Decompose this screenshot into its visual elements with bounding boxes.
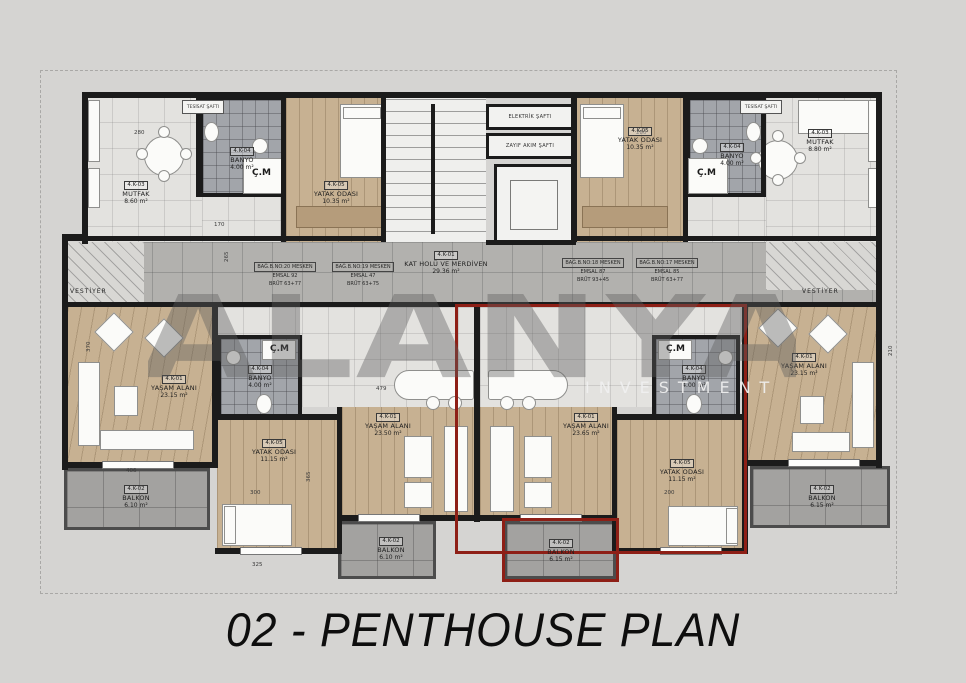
dimension: 325 [252,562,263,568]
elevator-car [510,180,558,230]
room-name: BALKON [360,546,422,555]
wall [212,302,218,468]
tesisat-safti-left: TESİSAT ŞAFTI [182,100,224,114]
room-label-yatak-unit2: 4.K-05 YATAK ODASI 11.15 m² [238,438,310,464]
tesisat-safti-right: TESİSAT ŞAFTI [740,100,782,114]
room-area: 4.00 m² [664,382,724,390]
room-label-yasam-unit2: 4.K-01 YAŞAM ALANI 23.50 m² [352,412,424,438]
vestiyer-right-label: VESTİYER [802,288,839,295]
window [240,547,302,555]
room-code: 4.K-02 [124,485,147,494]
wall [337,407,342,554]
parcel-no: BAĞ.B.NO:18 MESKEN [562,258,623,268]
window [102,461,174,469]
room-label-balkon-unit2: 4.K-02 BALKON 6.10 m² [360,536,422,562]
chair [180,148,192,160]
room-mutfak-topleft [86,96,202,242]
hall-topleft [202,194,286,242]
room-area: 6.10 m² [360,554,422,562]
wall [62,236,386,241]
wall [876,92,882,468]
parcel-emsal: EMSAL 85 [655,269,680,275]
room-label-balkon-unit3: 4.K-02 BALKON 6.15 m² [530,538,592,564]
chair [772,130,784,142]
room-name: MUTFAK [104,190,168,199]
room-area: 6.15 m² [790,502,854,510]
parcel-annotation: BAĞ.B.NO:20 MESKEN EMSAL 92 BRÜT 63+77 [248,262,322,288]
room-area: 6.10 m² [104,502,168,510]
wall [576,236,882,241]
dresser [296,206,382,228]
pillow [583,107,621,119]
cm-label-unit2: Ç.M [270,344,289,354]
room-area: 11.15 m² [646,476,718,484]
room-code: 4.K-05 [262,439,285,448]
room-name: KAT HOLÜ VE MERDİVEN [386,260,506,269]
parcel-emsal: EMSAL 87 [581,269,606,275]
chair [158,126,170,138]
room-area: 23.15 m² [770,370,838,378]
wall [683,92,688,242]
coffee-table [114,386,138,416]
room-name: BANYO [664,374,724,383]
room-code: 4.K-04 [248,365,271,374]
window [788,459,860,467]
room-name: YATAK ODASI [294,190,378,199]
room-name: BALKON [104,494,168,503]
dimension: 365 [306,472,312,483]
shaft-elektrik-label: ELEKTRİK ŞAFTI [508,114,551,120]
parcel-brut: BRÜT 63+77 [269,281,301,287]
room-area: 8.60 m² [104,198,168,206]
room-label-banyo-unit3: 4.K-04 BANYO 4.00 m² [664,364,724,390]
room-name: BANYO [230,374,290,383]
dimension: 370 [86,342,92,353]
room-area: 8.80 m² [788,146,852,154]
room-area: 10.35 m² [294,198,378,206]
room-name: YAŞAM ALANI [352,422,424,431]
room-code: 4.K-01 [162,375,185,384]
room-label-yasam-unit3: 4.K-01 YAŞAM ALANI 23.65 m² [550,412,622,438]
room-label-kat-holu: 4.K-01 KAT HOLÜ VE MERDİVEN 29.36 m² [386,250,506,276]
room-area: 11.15 m² [238,456,310,464]
parcel-no: BAĞ.B.NO:19 MESKEN [332,262,393,272]
room-label-yatak-unit3: 4.K-05 YATAK ODASI 11.15 m² [646,458,718,484]
room-code: 4.K-03 [808,129,831,138]
room-name: YAŞAM ALANI [550,422,622,431]
hall-topright [686,194,766,242]
shaft-zayif-akim: ZAYIF AKIM ŞAFTI [486,133,574,159]
pillow [343,107,381,119]
room-code: 4.K-03 [124,181,147,190]
parcel-emsal: EMSAL 47 [351,273,376,279]
sofa [792,432,850,452]
room-label-banyo-tr: 4.K-04 BANYO 4.00 m² [700,142,764,168]
room-name: YATAK ODASI [598,136,682,145]
vestiyer-right-area [766,242,882,290]
parcel-no: BAĞ.B.NO:17 MESKEN [636,258,697,268]
room-label-yatak-tr: 4.K-05 YATAK ODASI 10.35 m² [598,126,682,152]
stair-hall [386,96,486,244]
room-label-mutfak-tr: 4.K-03 MUTFAK 8.80 m² [788,128,852,154]
parcel-annotation: BAĞ.B.NO:17 MESKEN EMSAL 85 BRÜT 63+77 [630,258,704,284]
coffee-table [800,396,824,424]
room-name: BANYO [202,156,282,165]
room-code: 4.K-05 [628,127,651,136]
room-name: YAŞAM ALANI [770,362,838,371]
wall [571,92,577,242]
parcel-emsal: EMSAL 92 [273,273,298,279]
toilet [746,122,761,142]
tesisat-safti-right-label: TESİSAT ŞAFTI [745,105,777,110]
room-area: 6.15 m² [530,556,592,564]
dimension: 406 [126,468,137,474]
room-code: 4.K-04 [720,143,743,152]
room-code: 4.K-02 [810,485,833,494]
dimension: 200 [664,490,675,496]
wall [62,234,68,470]
room-code: 4.K-01 [574,413,597,422]
sofa [100,430,194,450]
room-name: BALKON [530,548,592,557]
room-area: 23.50 m² [352,430,424,438]
room-code: 4.K-01 [792,353,815,362]
stair-rail [431,104,435,234]
shaft-zayif-akim-label: ZAYIF AKIM ŞAFTI [506,143,554,149]
parcel-brut: BRÜT 93+45 [577,277,609,283]
room-label-yasam-br: 4.K-01 YAŞAM ALANI 23.15 m² [770,352,838,378]
room-name: BALKON [790,494,854,503]
plan-title: 02 - PENTHOUSE PLAN [24,602,942,657]
wall [217,414,342,420]
room-name: BANYO [700,152,764,161]
sink [426,396,440,410]
sofa [404,436,432,478]
pillow [224,506,236,544]
parcel-annotation: BAĞ.B.NO:19 MESKEN EMSAL 47 BRÜT 63+75 [326,262,400,288]
sink [226,350,241,365]
cm-label-unit3: Ç.M [666,344,685,354]
dresser [582,206,668,228]
parcel-no: BAĞ.B.NO:20 MESKEN [254,262,315,272]
parcel-brut: BRÜT 63+77 [651,277,683,283]
room-name: YATAK ODASI [646,468,718,477]
dimension: 300 [250,490,261,496]
room-code: 4.K-04 [230,147,253,156]
room-label-balkon-bl: 4.K-02 BALKON 6.10 m² [104,484,168,510]
room-name: MUTFAK [788,138,852,147]
vestiyer-left-label: VESTİYER [70,288,107,295]
room-name: YATAK ODASI [238,448,310,457]
room-area: 4.00 m² [230,382,290,390]
dimension: 280 [134,130,145,136]
toilet [256,394,272,414]
dimension: 170 [214,222,225,228]
chair [772,174,784,186]
room-area: 23.15 m² [140,392,208,400]
armchair [404,482,432,508]
dimension: 210 [888,346,894,357]
dimension: 265 [224,252,230,263]
room-label-yasam-bl: 4.K-01 YAŞAM ALANI 23.15 m² [140,374,208,400]
room-area: 23.65 m² [550,430,622,438]
cm-label-tr: Ç.M [697,168,716,178]
floor-plan-page: ELEKTRİK ŞAFTI ZAYIF AKIM ŞAFTI [0,0,966,683]
parcel-brut: BRÜT 63+75 [347,281,379,287]
hall-unit2-upper [217,307,302,335]
toilet [204,122,219,142]
room-label-mutfak-tl: 4.K-03 MUTFAK 8.60 m² [104,180,168,206]
kitchen-counter [88,168,100,208]
wall [82,92,88,244]
room-area: 10.35 m² [598,144,682,152]
parcel-annotation: BAĞ.B.NO:18 MESKEN EMSAL 87 BRÜT 93+45 [556,258,630,284]
wall [381,92,386,242]
room-code: 4.K-01 [434,251,457,260]
window [358,514,420,522]
room-name: YAŞAM ALANI [140,384,208,393]
sofa [78,362,100,446]
room-area: 29.36 m² [386,268,506,276]
room-label-yatak-tl: 4.K-05 YATAK ODASI 10.35 m² [294,180,378,206]
room-code: 4.K-02 [549,539,572,548]
kitchen-counter [88,100,100,162]
shaft-elektrik: ELEKTRİK ŞAFTI [486,104,574,130]
cm-label-tl: Ç.M [252,168,271,178]
room-label-balkon-br: 4.K-02 BALKON 6.15 m² [790,484,854,510]
room-code: 4.K-05 [670,459,693,468]
chair [136,148,148,160]
room-label-banyo-unit2: 4.K-04 BANYO 4.00 m² [230,364,290,390]
wall [486,240,576,245]
room-code: 4.K-04 [682,365,705,374]
dimension: 479 [376,386,387,392]
tesisat-safti-left-label: TESİSAT ŞAFTI [187,105,219,110]
room-code: 4.K-05 [324,181,347,190]
room-code: 4.K-01 [376,413,399,422]
sofa [852,362,874,448]
room-code: 4.K-02 [379,537,402,546]
